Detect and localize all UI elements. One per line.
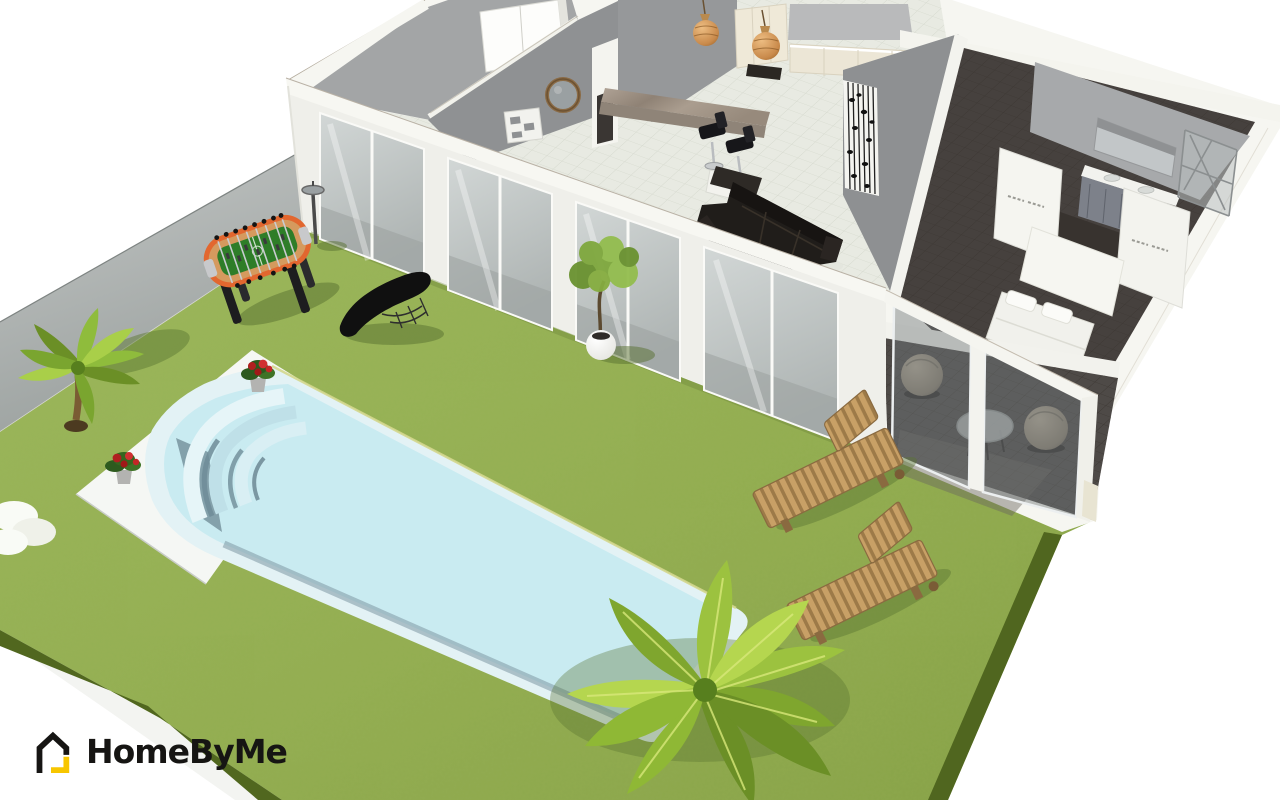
wall-art-panel	[843, 80, 879, 196]
homebyme-logo: HomeByMe	[28, 728, 287, 774]
pantry-floor	[788, 4, 913, 40]
house-outline-icon	[28, 728, 74, 774]
round-wall-mirror	[547, 79, 579, 111]
render-3d-scene[interactable]	[0, 0, 1280, 800]
wall-shelf	[504, 108, 543, 143]
homebyme-3d-viewport[interactable]: HomeByMe	[0, 0, 1280, 800]
logo-text: HomeByMe	[86, 732, 287, 771]
